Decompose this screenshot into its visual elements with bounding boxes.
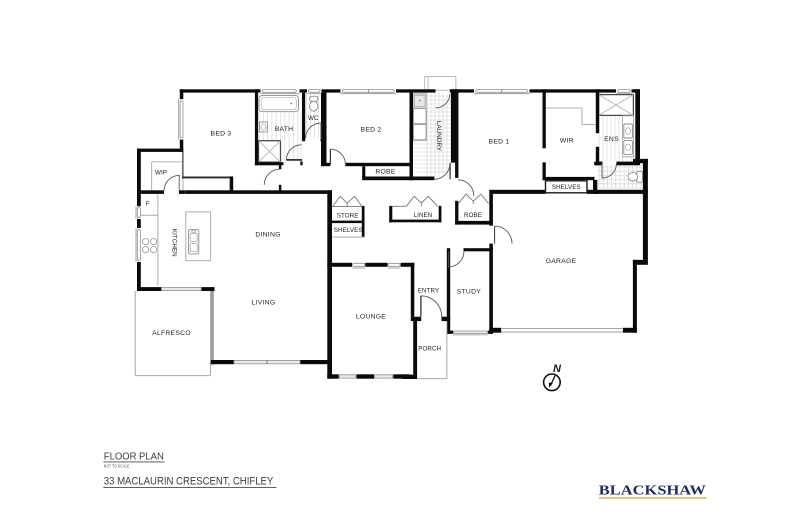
svg-text:WC: WC	[308, 115, 319, 122]
svg-text:BED 1: BED 1	[489, 139, 510, 146]
svg-text:ROBE: ROBE	[375, 169, 395, 176]
svg-text:WIP: WIP	[155, 170, 167, 177]
svg-text:F: F	[146, 201, 150, 208]
svg-text:BLACKSHAW: BLACKSHAW	[599, 483, 706, 498]
svg-text:LIVING: LIVING	[252, 300, 276, 307]
svg-text:WIR: WIR	[560, 138, 574, 145]
svg-text:NOT TO SCALE: NOT TO SCALE	[104, 463, 130, 468]
svg-text:LINEN: LINEN	[414, 212, 433, 219]
svg-text:LAUNDRY: LAUNDRY	[435, 121, 442, 151]
svg-text:ENTRY: ENTRY	[418, 287, 439, 294]
svg-text:GARAGE: GARAGE	[546, 258, 577, 265]
svg-text:BED 2: BED 2	[361, 127, 382, 134]
svg-text:SHELVES: SHELVES	[334, 227, 363, 234]
svg-text:BED 3: BED 3	[211, 131, 232, 138]
svg-text:STORE: STORE	[337, 213, 359, 220]
svg-text:ALFRESCO: ALFRESCO	[152, 330, 191, 337]
svg-text:33 MACLAURIN CRESCENT, CHIFLEY: 33 MACLAURIN CRESCENT, CHIFLEY	[104, 476, 274, 488]
svg-text:N: N	[553, 363, 562, 375]
svg-text:BATH: BATH	[275, 126, 294, 133]
svg-text:SHELVES: SHELVES	[552, 184, 581, 191]
svg-text:LOUNGE: LOUNGE	[356, 314, 386, 321]
svg-text:DINING: DINING	[255, 232, 280, 239]
svg-text:ROBE: ROBE	[464, 212, 482, 219]
svg-text:ENS: ENS	[604, 136, 619, 143]
svg-text:KITCHEN: KITCHEN	[170, 229, 177, 257]
svg-text:STUDY: STUDY	[457, 289, 482, 296]
svg-text:PORCH: PORCH	[418, 346, 441, 353]
svg-text:FLOOR PLAN: FLOOR PLAN	[104, 452, 164, 463]
